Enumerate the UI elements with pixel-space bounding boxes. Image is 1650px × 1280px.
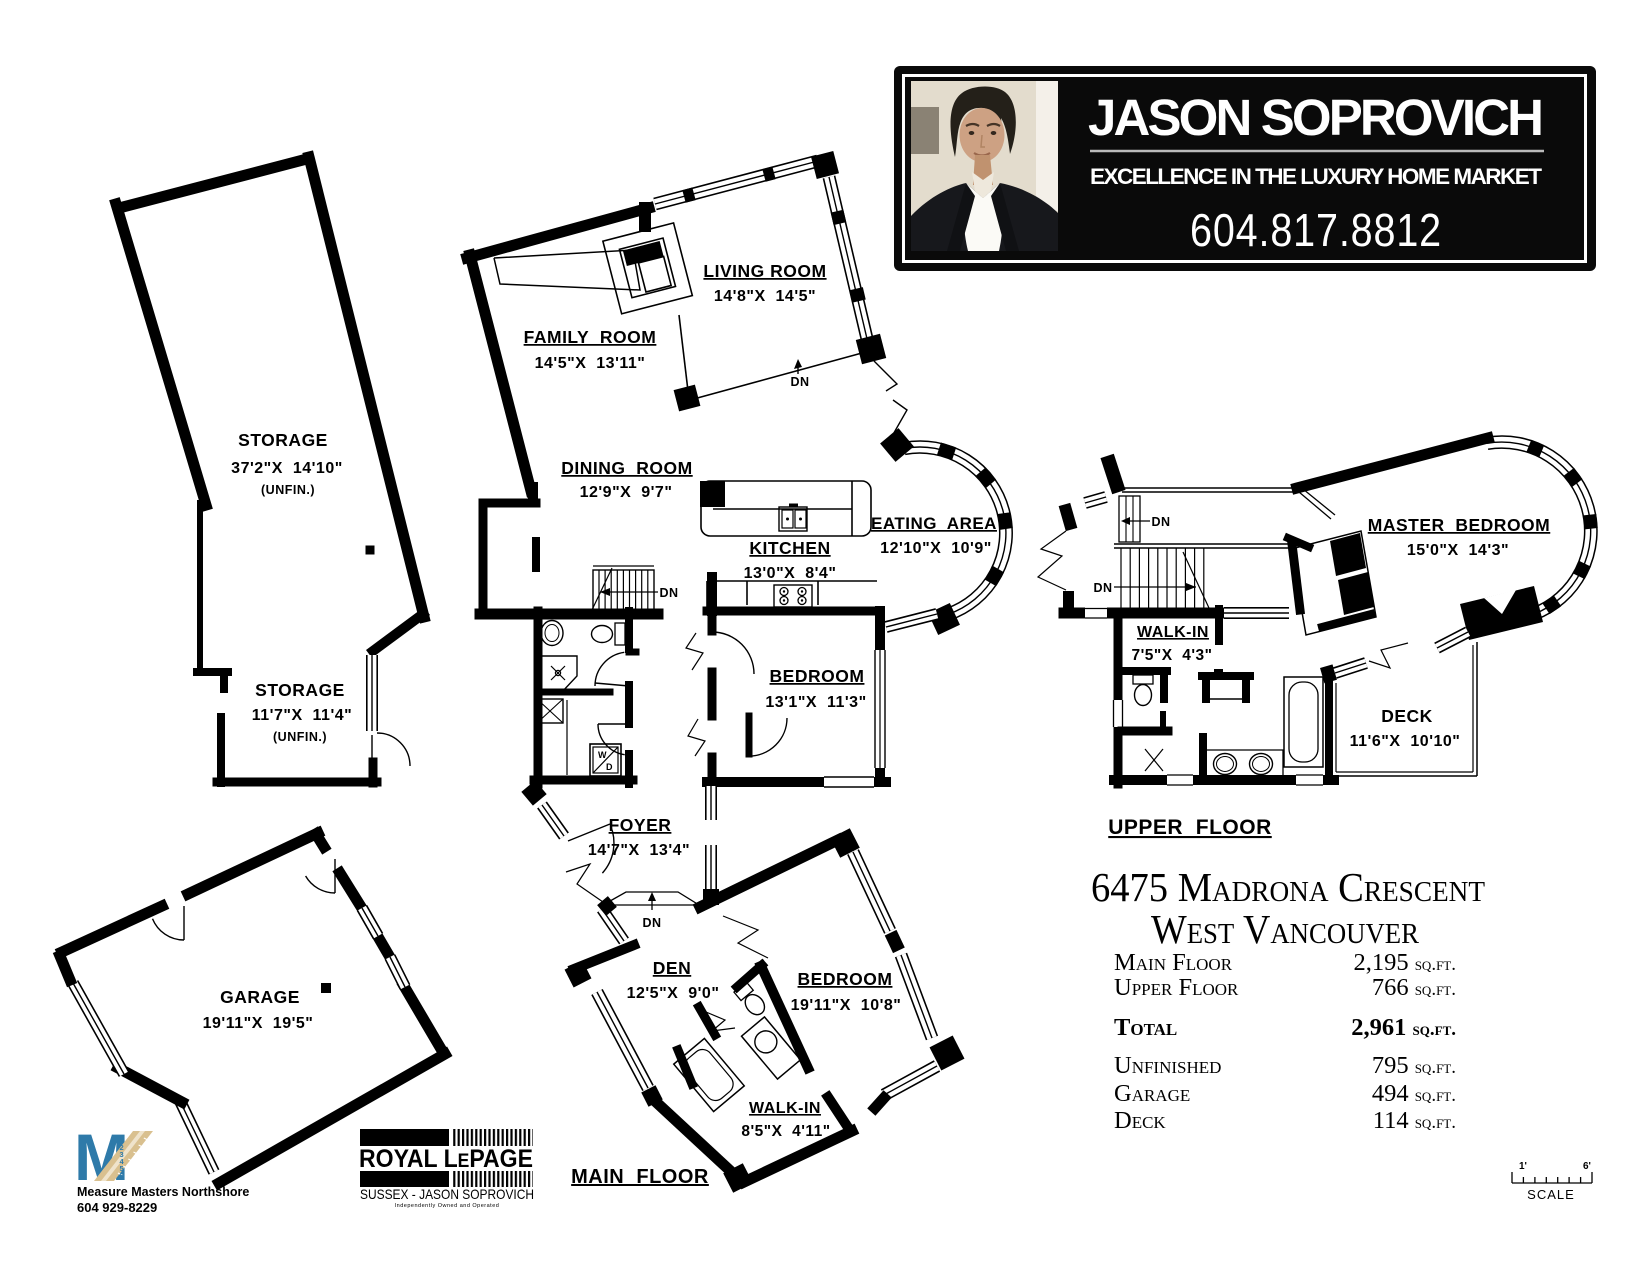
svg-text:EATING AREA: EATING AREA: [871, 514, 997, 533]
svg-text:SUSSEX - JASON SOPROVICH: SUSSEX - JASON SOPROVICH: [360, 1186, 534, 1202]
svg-text:12'5"X 9'0": 12'5"X 9'0": [627, 985, 720, 1002]
svg-text:Measure Masters Northshore: Measure Masters Northshore: [77, 1185, 249, 1199]
svg-text:2,195 sq.ft.: 2,195 sq.ft.: [1353, 949, 1456, 976]
svg-text:14'8"X 14'5": 14'8"X 14'5": [714, 288, 816, 305]
svg-text:UPPER FLOOR: UPPER FLOOR: [1108, 816, 1272, 839]
svg-text:WALK-IN: WALK-IN: [1137, 624, 1209, 641]
svg-text:Garage: Garage: [1114, 1080, 1190, 1107]
svg-text:13'0"X 8'4": 13'0"X 8'4": [744, 565, 837, 582]
svg-text:MASTER BEDROOM: MASTER BEDROOM: [1368, 515, 1551, 535]
svg-text:12'9"X 9'7": 12'9"X 9'7": [580, 484, 673, 501]
svg-text:6: 6: [120, 1171, 124, 1180]
svg-text:West Vancouver: West Vancouver: [1151, 906, 1420, 952]
svg-text:STORAGE: STORAGE: [255, 680, 345, 700]
svg-text:W: W: [598, 750, 607, 760]
svg-text:12'10"X 10'9": 12'10"X 10'9": [880, 540, 992, 557]
svg-text:11'6"X 10'10": 11'6"X 10'10": [1350, 733, 1461, 750]
svg-text:37'2"X 14'10": 37'2"X 14'10": [231, 460, 343, 477]
svg-text:FOYER: FOYER: [609, 815, 672, 835]
svg-text:STORAGE: STORAGE: [238, 430, 328, 450]
svg-text:766 sq.ft.: 766 sq.ft.: [1372, 974, 1456, 1001]
svg-text:DN: DN: [642, 916, 661, 930]
svg-text:8'5"X 4'11": 8'5"X 4'11": [741, 1123, 830, 1140]
svg-text:DECK: DECK: [1381, 706, 1433, 726]
svg-text:1': 1': [1519, 1161, 1527, 1172]
svg-text:WALK-IN: WALK-IN: [749, 1100, 821, 1117]
svg-text:19'11"X 19'5": 19'11"X 19'5": [203, 1015, 314, 1032]
svg-text:Main Floor: Main Floor: [1114, 949, 1233, 976]
svg-text:D: D: [606, 762, 613, 772]
svg-text:Total: Total: [1114, 1014, 1177, 1041]
svg-text:MAIN FLOOR: MAIN FLOOR: [571, 1166, 709, 1188]
svg-text:DEN: DEN: [653, 958, 691, 978]
svg-text:SCALE: SCALE: [1527, 1187, 1575, 1202]
svg-text:Upper Floor: Upper Floor: [1114, 974, 1239, 1001]
svg-text:19'11"X 10'8": 19'11"X 10'8": [791, 997, 902, 1014]
svg-text:795 sq.ft.: 795 sq.ft.: [1372, 1052, 1456, 1079]
svg-text:DN: DN: [790, 375, 809, 389]
svg-text:(UNFIN.): (UNFIN.): [273, 730, 327, 744]
svg-text:2,961 sq.ft.: 2,961 sq.ft.: [1351, 1014, 1456, 1041]
svg-text:DN: DN: [1151, 515, 1170, 529]
svg-text:604.817.8812: 604.817.8812: [1190, 204, 1442, 256]
svg-text:GARAGE: GARAGE: [220, 987, 300, 1007]
svg-text:JASON SOPROVICH: JASON SOPROVICH: [1088, 89, 1544, 146]
svg-text:14'7"X 13'4": 14'7"X 13'4": [588, 842, 690, 859]
svg-text:DN: DN: [1093, 581, 1112, 595]
svg-text:6': 6': [1583, 1161, 1591, 1172]
svg-text:(UNFIN.): (UNFIN.): [261, 483, 315, 497]
svg-text:14'5"X 13'11": 14'5"X 13'11": [535, 355, 646, 372]
svg-text:DN: DN: [659, 586, 678, 600]
svg-text:FAMILY ROOM: FAMILY ROOM: [524, 327, 657, 347]
svg-text:Independently Owned and Operat: Independently Owned and Operated: [395, 1203, 500, 1209]
svg-text:15'0"X 14'3": 15'0"X 14'3": [1407, 542, 1509, 559]
svg-text:114 sq.ft.: 114 sq.ft.: [1373, 1107, 1456, 1134]
svg-text:KITCHEN: KITCHEN: [749, 538, 830, 558]
svg-text:13'1"X 11'3": 13'1"X 11'3": [765, 694, 866, 711]
svg-text:7'5"X 4'3": 7'5"X 4'3": [1131, 647, 1212, 664]
svg-text:494 sq.ft.: 494 sq.ft.: [1372, 1080, 1456, 1107]
svg-text:DINING ROOM: DINING ROOM: [561, 458, 692, 478]
svg-text:LIVING ROOM: LIVING ROOM: [703, 261, 826, 281]
svg-text:BEDROOM: BEDROOM: [770, 666, 865, 686]
svg-text:BEDROOM: BEDROOM: [798, 969, 893, 989]
svg-text:Unfinished: Unfinished: [1114, 1052, 1221, 1079]
svg-text:604 929-8229: 604 929-8229: [77, 1200, 157, 1215]
svg-text:11'7"X 11'4": 11'7"X 11'4": [252, 707, 352, 724]
svg-text:ROYAL LEPAGE: ROYAL LEPAGE: [359, 1145, 533, 1173]
svg-text:EXCELLENCE IN THE LUXURY HOME: EXCELLENCE IN THE LUXURY HOME MARKET: [1090, 164, 1542, 189]
svg-text:Deck: Deck: [1114, 1107, 1166, 1134]
svg-text:6475 Madrona Crescent: 6475 Madrona Crescent: [1091, 864, 1485, 910]
